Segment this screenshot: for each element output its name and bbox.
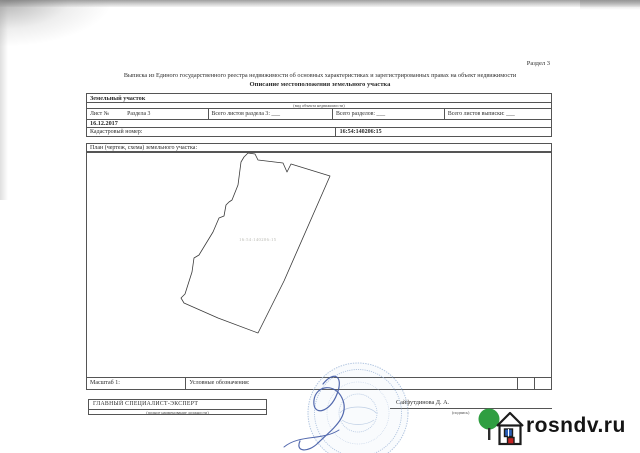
document-subtitle: Описание местоположения земельного участ… (80, 81, 560, 89)
sections-total-cell: Всего разделов: ___ (333, 109, 445, 119)
position-title: ГЛАВНЫЙ СПЕЦИАЛИСТ-ЭКСПЕРТ (89, 400, 266, 410)
legend-empty-cell-2 (535, 378, 551, 389)
logo-text: rosndv.ru (526, 414, 626, 438)
logo-house-icon (478, 404, 524, 448)
section-label: Раздел 3 (470, 60, 550, 68)
legend-label: Условные обозначения: (186, 378, 518, 389)
document-title: Выписка из Единого государственного реес… (80, 72, 560, 79)
legend-empty-cell-1 (518, 378, 535, 389)
sheets-total-cell: Всего листов раздела 3: ___ (209, 109, 333, 119)
scan-corner-shadow-right (580, 0, 640, 10)
signer-name: Сайфутдинова Д. А. (396, 399, 449, 407)
sheet-info-row: Лист №Раздела 3 Всего листов раздела 3: … (86, 109, 552, 120)
scale-label: Масштаб 1: (87, 378, 186, 389)
signer-note: (подпись) (452, 410, 469, 415)
position-note: (полное наименование должности) (89, 410, 266, 415)
cadastral-value: 16:54:140206:15 (336, 128, 551, 136)
scale-legend-row: Масштаб 1: Условные обозначения: (86, 378, 552, 390)
sheet-section: Раздела 3 (127, 111, 150, 117)
scan-corner-shadow (0, 0, 110, 46)
cadastral-row: Кадастровый номер: 16:54:140206:15 (86, 128, 552, 137)
plan-drawing-area (86, 152, 552, 378)
date-cell: 16.12.2017 (86, 120, 552, 128)
cadastral-label: Кадастровый номер: (87, 128, 336, 136)
sheet-label: Лист № (90, 111, 109, 117)
scan-left-shadow (0, 0, 8, 200)
extract-sheets-cell: Всего листов выписки: ___ (445, 109, 551, 119)
plan-section-label: План (чертеж, схема) земельного участка: (86, 143, 552, 152)
position-title-box: ГЛАВНЫЙ СПЕЦИАЛИСТ-ЭКСПЕРТ (полное наиме… (88, 399, 267, 415)
sheet-number-cell: Лист №Раздела 3 (87, 109, 209, 119)
logo-tree-icon (479, 409, 500, 430)
watermark-logo: rosndv.ru (478, 402, 640, 450)
object-type-cell: Земельный участок (86, 93, 552, 103)
